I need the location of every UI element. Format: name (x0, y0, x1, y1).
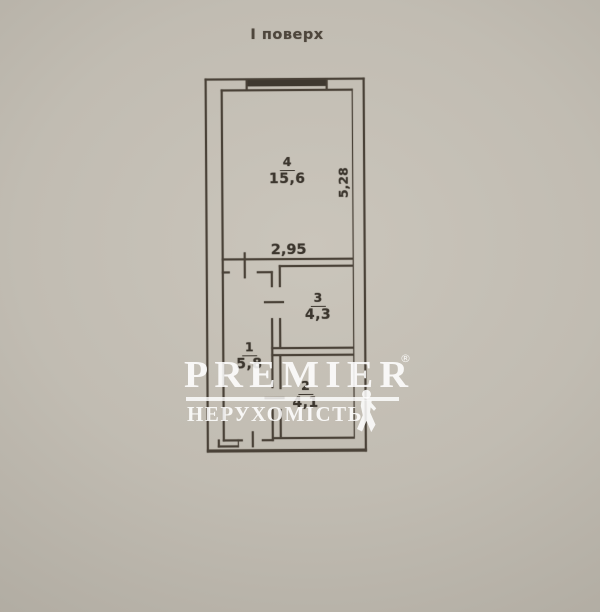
registered-mark-icon: ® (400, 352, 411, 365)
watermark: PREMIER ® НЕРУХОМІСТЬ (0, 0, 600, 612)
premier-subtitle: НЕРУХОМІСТЬ (187, 404, 363, 425)
photo-background: І поверх 415,634,315,824,12,955,28 PREMI… (0, 0, 600, 612)
walking-person-icon (350, 389, 380, 434)
